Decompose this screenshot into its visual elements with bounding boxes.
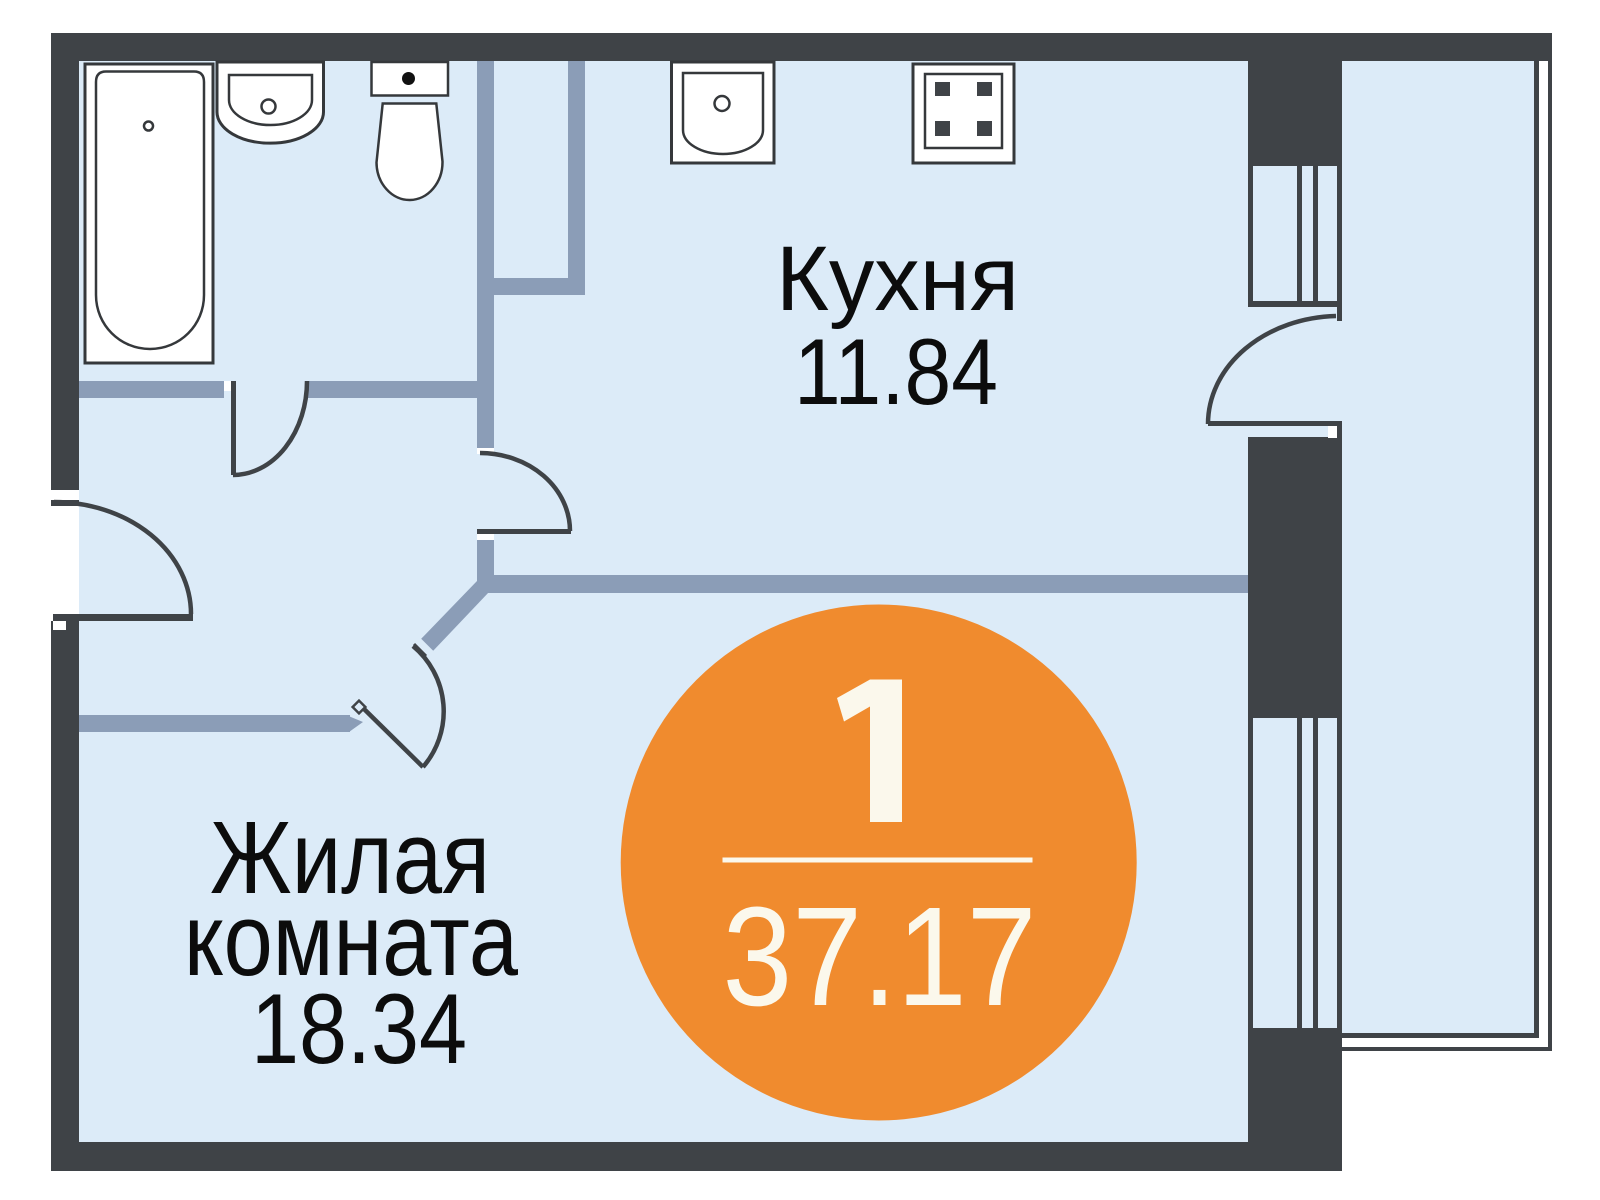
- svg-text:18.34: 18.34: [251, 973, 467, 1084]
- svg-text:37.17: 37.17: [723, 877, 1037, 1035]
- svg-text:11.84: 11.84: [794, 319, 998, 424]
- svg-text:Кухня: Кухня: [776, 228, 1019, 330]
